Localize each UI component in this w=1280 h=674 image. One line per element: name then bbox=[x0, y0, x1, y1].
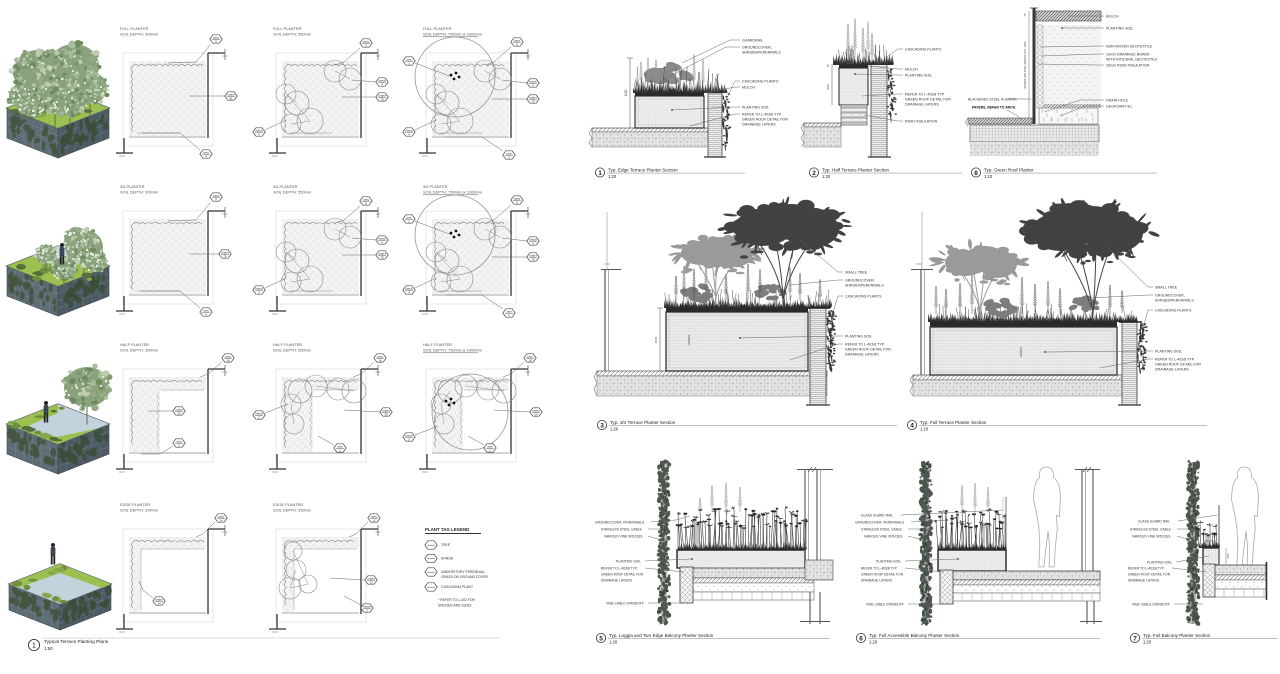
svg-text:1:20: 1:20 bbox=[610, 426, 619, 431]
svg-text:3/4 PLANTER: 3/4 PLANTER bbox=[273, 184, 298, 189]
svg-text:FULL PLANTER: FULL PLANTER bbox=[423, 26, 452, 31]
svg-text:91: 91 bbox=[229, 97, 233, 101]
svg-text:PLANTING SOIL: PLANTING SOIL bbox=[1155, 350, 1182, 354]
svg-text:10mm DRAINAGE BOARD: 10mm DRAINAGE BOARD bbox=[1106, 53, 1150, 57]
svg-text:5: 5 bbox=[599, 635, 603, 642]
svg-text:FULL PLANTER: FULL PLANTER bbox=[273, 26, 302, 31]
svg-text:CASCADING PLANTS: CASCADING PLANTS bbox=[1155, 309, 1192, 313]
svg-text:79: 79 bbox=[531, 100, 535, 104]
svg-text:SOIL DEPTH: 550mm: SOIL DEPTH: 550mm bbox=[273, 508, 311, 513]
svg-text:SOIL DEPTH: 300mm: SOIL DEPTH: 300mm bbox=[120, 348, 158, 353]
svg-text:Typ. Half Terrace Planter Sect: Typ. Half Terrace Planter Section bbox=[822, 167, 890, 172]
svg-text:4: 4 bbox=[910, 422, 914, 429]
svg-text:CASCADING PLANTS: CASCADING PLANTS bbox=[845, 295, 882, 299]
svg-text:HALF PLANTER: HALF PLANTER bbox=[273, 342, 302, 347]
svg-text:PAVERS, REFER TO ARCH.: PAVERS, REFER TO ARCH. bbox=[972, 106, 1016, 110]
svg-text:MULCH: MULCH bbox=[905, 68, 918, 72]
svg-text:GREEN ROOF DETAIL FOR: GREEN ROOF DETAIL FOR bbox=[742, 118, 788, 122]
svg-text:SOIL DEPTH: 550mm: SOIL DEPTH: 550mm bbox=[273, 348, 311, 353]
svg-text:GUARDRAIL: GUARDRAIL bbox=[742, 39, 763, 43]
svg-text:79: 79 bbox=[223, 255, 227, 259]
svg-text:1:20: 1:20 bbox=[822, 174, 831, 179]
svg-text:SOIL DEPTH: 550mm: SOIL DEPTH: 550mm bbox=[273, 190, 311, 195]
svg-text:12: 12 bbox=[372, 519, 376, 523]
svg-text:PLANTING SOIL: PLANTING SOIL bbox=[845, 335, 872, 339]
svg-text:VARIES 300-1000 (REFER TO L-40: VARIES 300-1000 (REFER TO L-400) bbox=[1023, 41, 1027, 88]
svg-text:VARIES: VARIES bbox=[1019, 347, 1023, 358]
svg-text:Typical Terrace Planting Plans: Typical Terrace Planting Plans bbox=[44, 639, 109, 645]
svg-text:8: 8 bbox=[974, 170, 978, 177]
svg-text:CASCADING PLANT: CASCADING PLANT bbox=[441, 585, 473, 589]
svg-text:79: 79 bbox=[380, 256, 384, 260]
svg-text:30: 30 bbox=[384, 413, 388, 417]
svg-text:UNDERSTORY PERENNIAL,: UNDERSTORY PERENNIAL, bbox=[441, 570, 486, 574]
svg-text:18: 18 bbox=[528, 359, 532, 363]
svg-text:FULL PLANTER: FULL PLANTER bbox=[120, 26, 149, 31]
svg-text:REFER TO L-403/8 TYP.: REFER TO L-403/8 TYP. bbox=[742, 113, 782, 117]
svg-text:GROUNDCOVER,: GROUNDCOVER, bbox=[742, 46, 772, 50]
svg-text:1:20: 1:20 bbox=[609, 639, 618, 644]
svg-text:1: 1 bbox=[598, 170, 602, 177]
svg-text:EDGE PLANTER: EDGE PLANTER bbox=[120, 502, 150, 507]
svg-text:DRAIN HOLE: DRAIN HOLE bbox=[1106, 99, 1129, 103]
svg-text:Typ. Edge Terrace Planter Sect: Typ. Edge Terrace Planter Section bbox=[608, 167, 678, 172]
svg-text:14: 14 bbox=[157, 602, 161, 606]
svg-text:DRAINAGE LAYERS: DRAINAGE LAYERS bbox=[905, 103, 939, 107]
svg-text:GRASS OR GROUND COVER: GRASS OR GROUND COVER bbox=[441, 575, 488, 579]
svg-text:SHRUB: SHRUB bbox=[441, 557, 454, 561]
svg-text:MULCH: MULCH bbox=[1106, 15, 1119, 19]
svg-text:1:20: 1:20 bbox=[920, 426, 929, 431]
svg-text:Typ. Green Roof Planter: Typ. Green Roof Planter bbox=[984, 167, 1034, 172]
svg-text:SHRUBS/PERENNIALS: SHRUBS/PERENNIALS bbox=[742, 51, 781, 55]
svg-text:BLACKENED STEEL PLANTER: BLACKENED STEEL PLANTER bbox=[968, 98, 1017, 102]
svg-text:75: 75 bbox=[1023, 13, 1027, 17]
svg-text:SPECIES AND SIZES: SPECIES AND SIZES bbox=[438, 604, 472, 608]
svg-text:PLANTING SOIL: PLANTING SOIL bbox=[905, 74, 932, 78]
svg-text:24: 24 bbox=[534, 413, 538, 417]
svg-text:79: 79 bbox=[380, 98, 384, 102]
svg-text:DRAINAGE LAYERS: DRAINAGE LAYERS bbox=[742, 123, 776, 127]
svg-text:PLANT TAG LEGEND: PLANT TAG LEGEND bbox=[425, 527, 469, 532]
svg-text:1:20: 1:20 bbox=[608, 174, 617, 179]
svg-text:REFER TO L-403/8 TYP.: REFER TO L-403/8 TYP. bbox=[905, 93, 945, 97]
svg-text:SMALL TREE: SMALL TREE bbox=[1155, 286, 1178, 290]
svg-text:EDGE PLANTER: EDGE PLANTER bbox=[273, 502, 303, 507]
svg-text:1: 1 bbox=[32, 641, 36, 650]
svg-text:PLANTING SOIL: PLANTING SOIL bbox=[1106, 27, 1133, 31]
svg-text:VINE CABLE STANDOFF: VINE CABLE STANDOFF bbox=[606, 602, 644, 606]
svg-text:DRAINAGE LAYERS: DRAINAGE LAYERS bbox=[601, 579, 633, 583]
svg-text:SOIL DEPTH: 750mm or 1000mm: SOIL DEPTH: 750mm or 1000mm bbox=[423, 348, 482, 353]
svg-text:SOIL DEPTH: 300mm: SOIL DEPTH: 300mm bbox=[120, 32, 158, 37]
svg-text:SHRUBS/PERENNIALS: SHRUBS/PERENNIALS bbox=[1155, 299, 1194, 303]
svg-text:RIGID INSULATION: RIGID INSULATION bbox=[905, 120, 938, 124]
svg-text:SOIL DEPTH: 300mm: SOIL DEPTH: 300mm bbox=[120, 190, 158, 195]
svg-text:PLANTING SOIL: PLANTING SOIL bbox=[616, 560, 641, 564]
svg-text:WITH INTEGRAL GEOTEXTILE: WITH INTEGRAL GEOTEXTILE bbox=[1106, 58, 1158, 62]
svg-text:* REFER TO L-402 FOR: * REFER TO L-402 FOR bbox=[438, 598, 476, 602]
svg-text:GROUNDCOVER,: GROUNDCOVER, bbox=[845, 279, 875, 283]
svg-text:GREEN ROOF DETAIL FOR: GREEN ROOF DETAIL FOR bbox=[1155, 363, 1201, 367]
svg-text:1070: 1070 bbox=[654, 336, 658, 343]
svg-text:14: 14 bbox=[219, 519, 223, 523]
svg-text:1:10: 1:10 bbox=[984, 174, 993, 179]
svg-text:DRAINAGE LAYERS: DRAINAGE LAYERS bbox=[1155, 368, 1189, 372]
svg-text:SOIL DEPTH: 300mm: SOIL DEPTH: 300mm bbox=[120, 508, 158, 513]
svg-text:VARIES: VARIES bbox=[687, 335, 691, 346]
svg-text:GROUNDCOVER,: GROUNDCOVER, bbox=[1155, 294, 1185, 298]
svg-text:30: 30 bbox=[177, 412, 181, 416]
svg-text:1100: 1100 bbox=[624, 89, 628, 96]
svg-text:REFER TO L-403/8 TYP.: REFER TO L-403/8 TYP. bbox=[1155, 358, 1195, 362]
svg-text:73: 73 bbox=[531, 258, 535, 262]
svg-text:Typ. Loggia and Two Edge Balco: Typ. Loggia and Two Edge Balcony Planter… bbox=[609, 633, 714, 638]
svg-text:Typ. Full Terrace Planter Sect: Typ. Full Terrace Planter Section bbox=[920, 420, 987, 425]
svg-text:REFER TO L-403/8 TYP.: REFER TO L-403/8 TYP. bbox=[601, 567, 638, 571]
svg-text:SOIL DEPTH: 750mm or 1000mm: SOIL DEPTH: 750mm or 1000mm bbox=[423, 190, 482, 195]
svg-text:SOIL DEPTH: 750mm or 1000mm: SOIL DEPTH: 750mm or 1000mm bbox=[423, 32, 482, 37]
svg-text:CASCADING PLANTS: CASCADING PLANTS bbox=[742, 80, 779, 84]
svg-text:2: 2 bbox=[812, 170, 816, 177]
svg-text:3/4 PLANTER: 3/4 PLANTER bbox=[423, 184, 448, 189]
svg-text:TREE: TREE bbox=[441, 543, 451, 547]
svg-text:CASCADING PLANTS: CASCADING PLANTS bbox=[905, 48, 942, 52]
svg-text:SMALL TREE: SMALL TREE bbox=[845, 271, 868, 275]
svg-text:13: 13 bbox=[369, 581, 373, 585]
svg-text:HALF PLANTER: HALF PLANTER bbox=[423, 342, 452, 347]
svg-text:25mm RIGID INSULATION: 25mm RIGID INSULATION bbox=[1106, 64, 1150, 68]
svg-text:3: 3 bbox=[600, 422, 604, 429]
svg-text:HALF PLANTER: HALF PLANTER bbox=[120, 342, 149, 347]
svg-text:GEOFOAM FILL: GEOFOAM FILL bbox=[1106, 105, 1133, 109]
svg-text:NON-WOVEN GEOTEXTILE: NON-WOVEN GEOTEXTILE bbox=[1106, 45, 1153, 49]
svg-text:550: 550 bbox=[826, 84, 830, 89]
svg-text:MULCH: MULCH bbox=[742, 86, 755, 90]
svg-text:1:50: 1:50 bbox=[44, 646, 53, 651]
svg-text:DRAINAGE LAYERS: DRAINAGE LAYERS bbox=[845, 353, 879, 357]
svg-text:GREEN ROOF DETAIL FOR: GREEN ROOF DETAIL FOR bbox=[601, 573, 644, 577]
svg-text:PLANTING SOIL: PLANTING SOIL bbox=[742, 106, 769, 110]
svg-text:18: 18 bbox=[226, 359, 230, 363]
svg-text:18: 18 bbox=[378, 359, 382, 363]
svg-text:GREEN ROOF DETAIL FOR: GREEN ROOF DETAIL FOR bbox=[905, 98, 951, 102]
svg-text:75: 75 bbox=[826, 64, 830, 68]
svg-text:VARIOUS VINE SPECIES: VARIOUS VINE SPECIES bbox=[604, 535, 643, 539]
svg-text:Typ. 3/4 Terrace Planter Secti: Typ. 3/4 Terrace Planter Section bbox=[610, 420, 676, 425]
svg-text:3/4 PLANTER: 3/4 PLANTER bbox=[120, 184, 145, 189]
svg-text:STAINLESS STEEL CABLE: STAINLESS STEEL CABLE bbox=[601, 528, 643, 532]
svg-text:GREEN ROOF DETAIL FOR: GREEN ROOF DETAIL FOR bbox=[845, 348, 891, 352]
svg-text:SOIL DEPTH: 550mm: SOIL DEPTH: 550mm bbox=[273, 32, 311, 37]
svg-text:GROUNDCOVER, PERENNIALS: GROUNDCOVER, PERENNIALS bbox=[595, 521, 645, 525]
svg-text:SHRUBS/PERENNIALS: SHRUBS/PERENNIALS bbox=[845, 284, 884, 288]
svg-text:REFER TO L-403/8 TYP.: REFER TO L-403/8 TYP. bbox=[845, 343, 885, 347]
